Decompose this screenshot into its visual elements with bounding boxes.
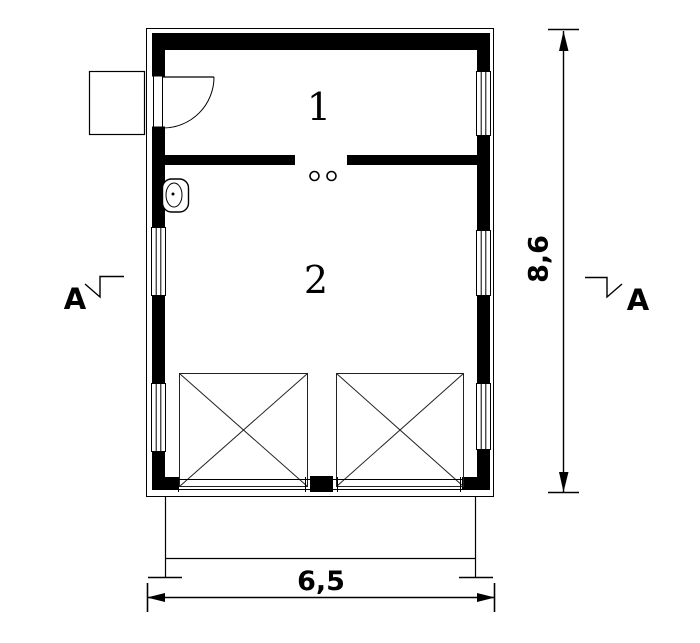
door-lintel-top [152, 72, 165, 77]
door-post-right [327, 172, 336, 181]
partition-wall-right-part [347, 155, 477, 165]
room-label-2: 2 [304, 258, 328, 302]
section-letter-left: A [64, 282, 87, 316]
porch [90, 72, 145, 135]
arrow-down-icon [559, 472, 569, 492]
windows-right [477, 72, 491, 450]
window-left-1 [152, 228, 166, 296]
dimension-width: 6,5 [147, 566, 495, 612]
partition-wall [165, 155, 477, 165]
garage-door-right [337, 374, 464, 487]
pier-bottom-left [152, 477, 178, 490]
pier-bottom-center [310, 476, 333, 492]
driveway [166, 497, 476, 577]
window-right-2 [477, 231, 491, 296]
arrow-left-icon [147, 593, 165, 602]
partition-door-posts [310, 172, 336, 181]
door-post-left [310, 172, 319, 181]
window-left-2 [152, 384, 166, 452]
arrow-up-icon [559, 31, 569, 51]
width-dimension-label: 6,5 [297, 566, 345, 597]
wall-right-seg2 [477, 136, 490, 230]
toilet [163, 179, 189, 212]
arrow-right-icon [477, 593, 495, 602]
wall-right-seg3 [477, 296, 490, 383]
room-label-1: 1 [307, 85, 331, 129]
entry-door [152, 72, 214, 131]
door-swing-arc [163, 77, 214, 128]
wall-left-seg2 [152, 129, 165, 227]
section-marker-left: A [64, 277, 124, 317]
partition-wall-left-part [165, 155, 295, 165]
wall-right-seg1 [477, 50, 490, 71]
floor-plan-canvas: 6,5 8,6 A A 1 2 [0, 0, 700, 643]
pier-bottom-right [462, 477, 490, 490]
door-lintel-bottom [152, 127, 165, 132]
wall-top [152, 33, 490, 50]
section-letter-right: A [627, 283, 650, 317]
window-right-3 [477, 384, 491, 450]
section-marker-right: A [585, 278, 650, 318]
height-dimension-label: 8,6 [524, 235, 555, 283]
garage-door-left [180, 374, 308, 487]
wall-left-seg3 [152, 296, 165, 383]
dimension-height: 8,6 [524, 30, 580, 493]
window-right-1 [477, 72, 491, 136]
floor-plan-drawing: 6,5 8,6 A A 1 2 [0, 0, 700, 643]
wall-left-seg1 [152, 50, 165, 75]
